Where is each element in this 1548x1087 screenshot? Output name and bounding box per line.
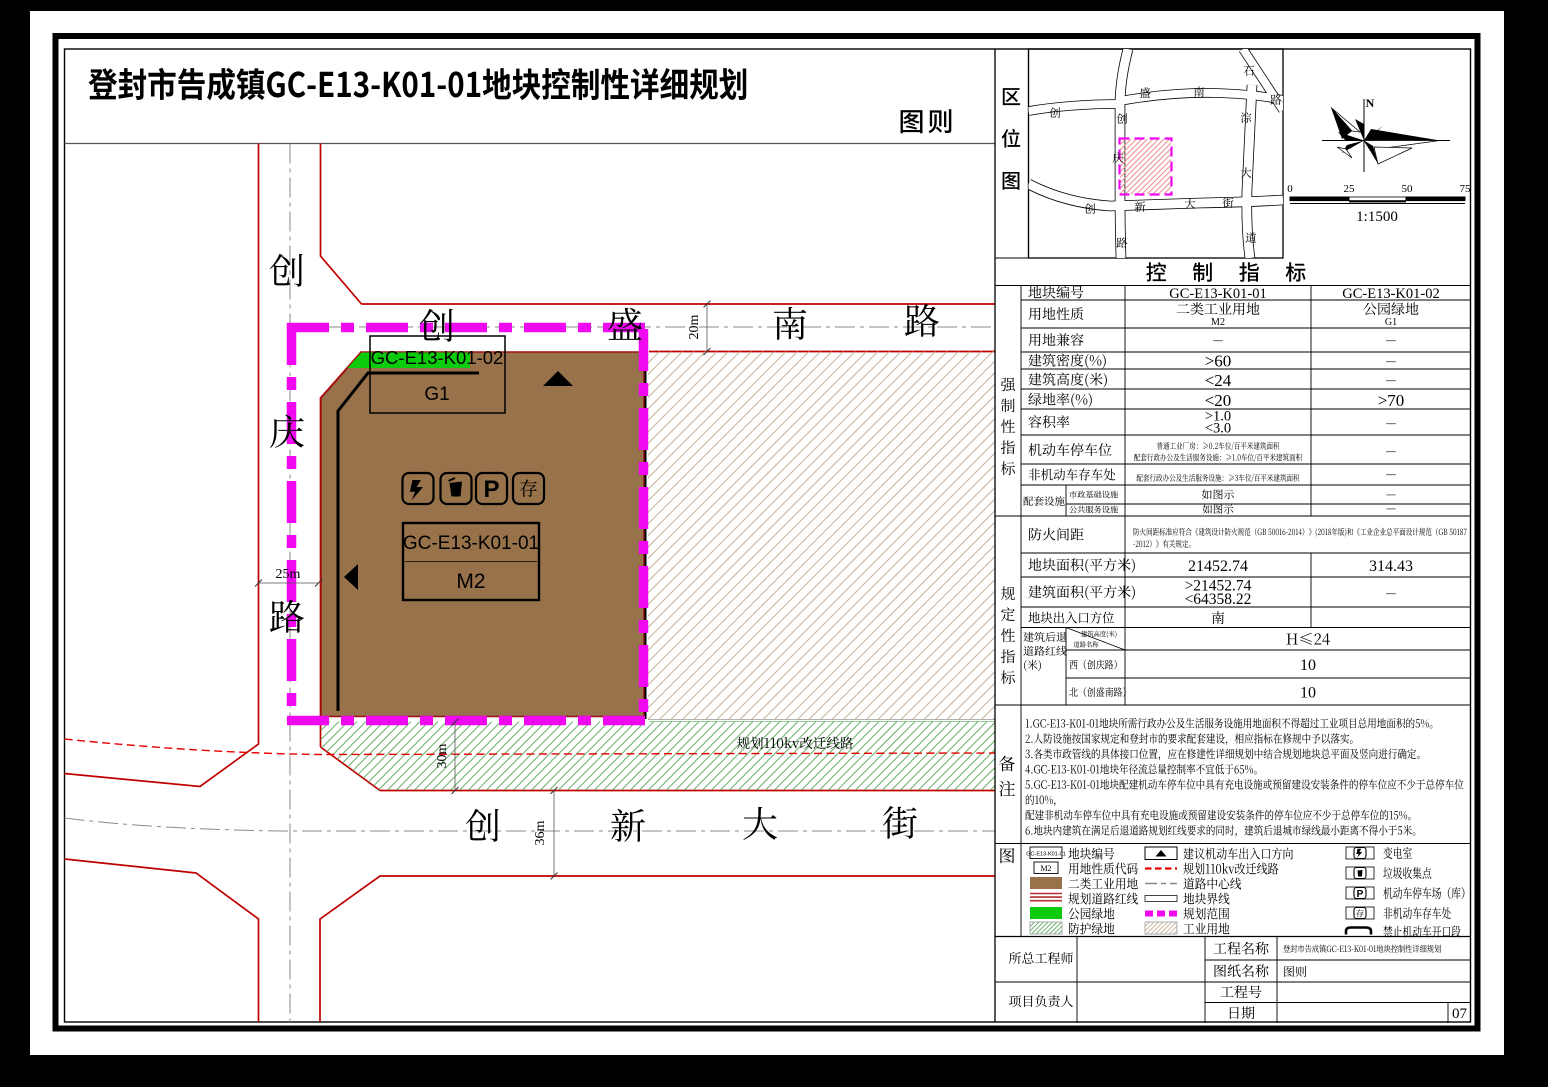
svg-text:GC-E13-K01-02: GC-E13-K01-02	[371, 347, 504, 368]
svg-text:G1: G1	[1385, 317, 1397, 328]
svg-text:M2: M2	[1211, 317, 1225, 328]
svg-text:21452.74: 21452.74	[1188, 558, 1248, 575]
svg-text:30m: 30m	[435, 743, 450, 768]
svg-text:GC-E13-K01-02: GC-E13-K01-02	[1342, 286, 1439, 302]
svg-text:50: 50	[1402, 183, 1414, 195]
svg-text:314.43: 314.43	[1369, 558, 1413, 575]
svg-text:G1: G1	[424, 384, 449, 405]
svg-text:<24: <24	[1205, 371, 1232, 390]
svg-text:M2: M2	[1040, 864, 1051, 873]
svg-text:>70: >70	[1378, 391, 1405, 410]
svg-text:36m: 36m	[533, 820, 548, 845]
svg-text:GC-E13-K01-01: GC-E13-K01-01	[403, 533, 539, 554]
svg-text:M2: M2	[456, 570, 485, 593]
svg-text:10: 10	[1300, 685, 1316, 702]
svg-text:<20: <20	[1205, 391, 1232, 410]
svg-text:0: 0	[1287, 183, 1293, 195]
svg-text:75: 75	[1460, 183, 1472, 195]
svg-text:P: P	[483, 476, 499, 503]
svg-text:25m: 25m	[276, 567, 301, 582]
svg-text:07: 07	[1452, 1006, 1468, 1022]
svg-text:GC-E13-K01-01: GC-E13-K01-01	[1026, 852, 1065, 858]
svg-text:GC-E13-K01-01: GC-E13-K01-01	[1169, 286, 1266, 302]
svg-text:1:1500: 1:1500	[1356, 209, 1398, 225]
svg-text:P: P	[1357, 889, 1364, 900]
svg-text:<3.0: <3.0	[1205, 421, 1231, 437]
svg-text:>60: >60	[1205, 352, 1232, 371]
svg-text:10: 10	[1300, 657, 1316, 674]
svg-text:25: 25	[1344, 183, 1356, 195]
svg-text:20m: 20m	[687, 314, 702, 339]
svg-text:<64358.22: <64358.22	[1185, 591, 1252, 608]
svg-text:N: N	[1366, 96, 1375, 110]
